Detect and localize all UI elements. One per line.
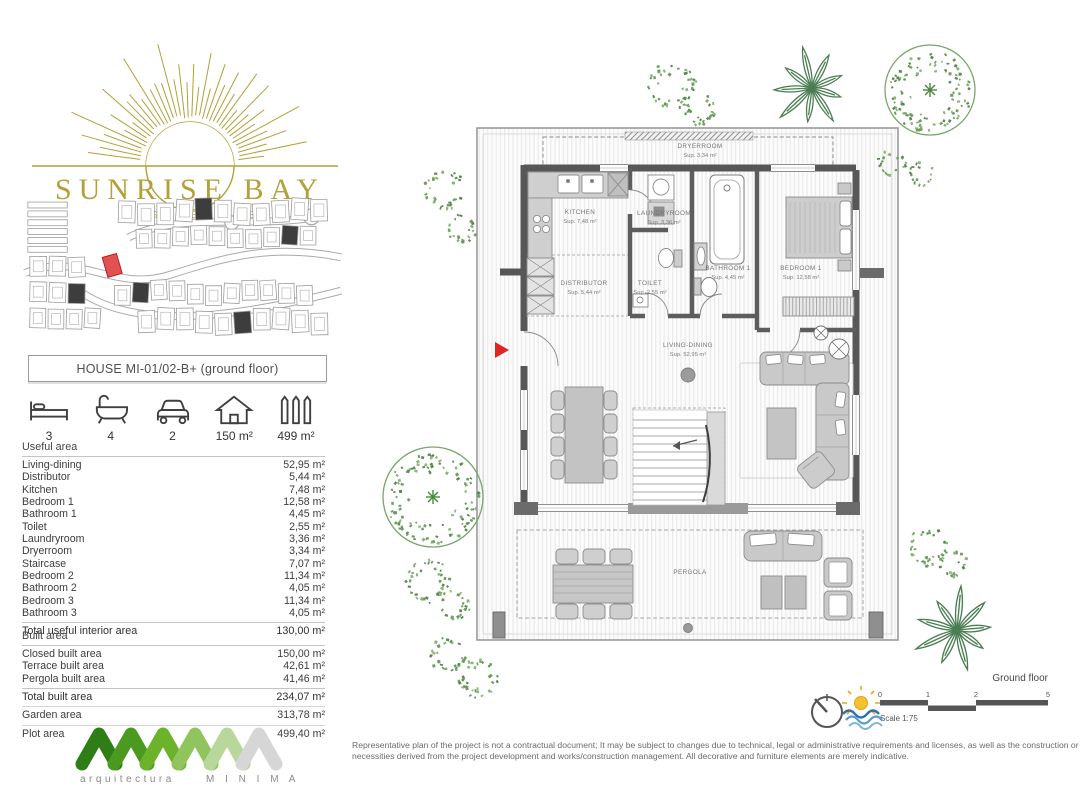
svg-text:Sup. 7,48 m²: Sup. 7,48 m² bbox=[563, 219, 596, 225]
svg-text:5: 5 bbox=[1046, 690, 1050, 699]
plan-title: HOUSE MI-01/02-B+ (ground floor) bbox=[28, 355, 327, 382]
plan-brochure-page: DRYERROOM Sup. 3,34 m² KITCHEN Sup. 7,48… bbox=[0, 0, 1080, 810]
svg-text:0: 0 bbox=[878, 690, 882, 699]
car-icon bbox=[150, 393, 196, 427]
disclaimer: Representative plan of the project is no… bbox=[352, 740, 1080, 762]
room-label-pergola: PERGOLA bbox=[673, 569, 707, 576]
stat-plot-size: 499 m² bbox=[267, 393, 325, 443]
disclaimer-line2: necessities derived from the project dev… bbox=[352, 751, 1080, 762]
sidebar: SUNRISE BAY RESIDENCES HOUSE MI-01/02-B+… bbox=[20, 18, 345, 793]
scale-label: Scale 1:75 bbox=[880, 714, 918, 723]
area-row: Kitchen7,48 m² bbox=[22, 484, 325, 496]
area-row: Bedroom 112,58 m² bbox=[22, 496, 325, 508]
room-label-distributor: DISTRIBUTOR bbox=[561, 280, 608, 287]
garden-area-row: Garden area313,78 m² bbox=[22, 709, 325, 721]
room-label-kitchen: KITCHEN bbox=[565, 209, 595, 216]
staircase bbox=[633, 410, 725, 505]
area-row: Living-dining52,95 m² bbox=[22, 459, 325, 471]
site-map bbox=[20, 196, 345, 346]
room-label-bedroom1: BEDROOM 1 bbox=[780, 265, 821, 272]
area-row: Laundryroom3,36 m² bbox=[22, 533, 325, 545]
area-row: Terrace built area42,61 m² bbox=[22, 660, 325, 672]
room-label-living-dining: LIVING-DINING bbox=[663, 342, 713, 349]
svg-text:Sup. 4,45 m²: Sup. 4,45 m² bbox=[711, 275, 744, 281]
stat-interior-size: 150 m² bbox=[205, 393, 263, 443]
svg-text:Sup. 5,44 m²: Sup. 5,44 m² bbox=[567, 290, 600, 296]
useful-area-table: Useful area Living-dining52,95 m² Distri… bbox=[22, 441, 325, 638]
room-label-toilet: TOILET bbox=[638, 280, 662, 287]
svg-text:Sup. 2,55 m²: Sup. 2,55 m² bbox=[633, 290, 666, 296]
svg-text:Sup. 52,95 m²: Sup. 52,95 m² bbox=[670, 352, 706, 358]
stat-bathrooms: 4 bbox=[82, 393, 140, 443]
stat-parking: 2 bbox=[144, 393, 202, 443]
architect-word: arquitectura bbox=[80, 774, 175, 784]
area-row: Toilet2,55 m² bbox=[22, 521, 325, 533]
useful-area-heading: Useful area bbox=[22, 441, 325, 453]
svg-text:2: 2 bbox=[974, 690, 978, 699]
bed-icon bbox=[26, 393, 72, 427]
scale-bar: 0 1 2 5 Scale 1:75 bbox=[878, 690, 1050, 723]
built-total-row: Total built area234,07 m² bbox=[22, 691, 325, 703]
room-label-laundryroom: LAUNDRYROOM bbox=[637, 210, 691, 217]
area-row: Dryerroom3,34 m² bbox=[22, 545, 325, 557]
area-row: Distributor5,44 m² bbox=[22, 471, 325, 483]
compass-icon bbox=[812, 694, 842, 727]
sun-sea-icon bbox=[842, 686, 882, 729]
area-row: Closed built area150,00 m² bbox=[22, 648, 325, 660]
area-row: Bathroom 34,05 m² bbox=[22, 607, 325, 619]
room-label-dryerroom: DRYERROOM bbox=[677, 143, 722, 150]
area-row: Bathroom 24,05 m² bbox=[22, 582, 325, 594]
room-label-bathroom1: BATHROOM 1 bbox=[705, 265, 750, 272]
stat-bedrooms: 3 bbox=[20, 393, 78, 443]
area-row: Bedroom 211,34 m² bbox=[22, 570, 325, 582]
area-row: Pergola built area41,46 m² bbox=[22, 673, 325, 685]
floor-label: Ground floor bbox=[992, 673, 1048, 684]
svg-text:Sup. 3,34 m²: Sup. 3,34 m² bbox=[683, 153, 716, 159]
distributor-wardrobes bbox=[527, 258, 554, 314]
bath-icon bbox=[88, 393, 134, 427]
area-row: Bedroom 311,34 m² bbox=[22, 595, 325, 607]
stats-row: 3 4 2 bbox=[20, 393, 325, 443]
disclaimer-line1: Representative plan of the project is no… bbox=[352, 740, 1080, 751]
area-row: Staircase7,07 m² bbox=[22, 558, 325, 570]
sunrise-bay-logo: SUNRISE BAY RESIDENCES bbox=[20, 18, 345, 218]
svg-text:Sup. 3,36 m²: Sup. 3,36 m² bbox=[647, 220, 680, 226]
svg-text:1: 1 bbox=[926, 690, 930, 699]
svg-text:Sup. 12,58 m²: Sup. 12,58 m² bbox=[783, 275, 819, 281]
fence-icon bbox=[273, 393, 319, 427]
house-icon bbox=[211, 393, 257, 427]
architect-name: M I N I M A bbox=[206, 774, 299, 784]
arquitectura-minima-logo: arquitectura M I N I M A bbox=[58, 722, 313, 784]
built-area-heading: Built area bbox=[22, 630, 325, 642]
area-row: Bathroom 14,45 m² bbox=[22, 508, 325, 520]
